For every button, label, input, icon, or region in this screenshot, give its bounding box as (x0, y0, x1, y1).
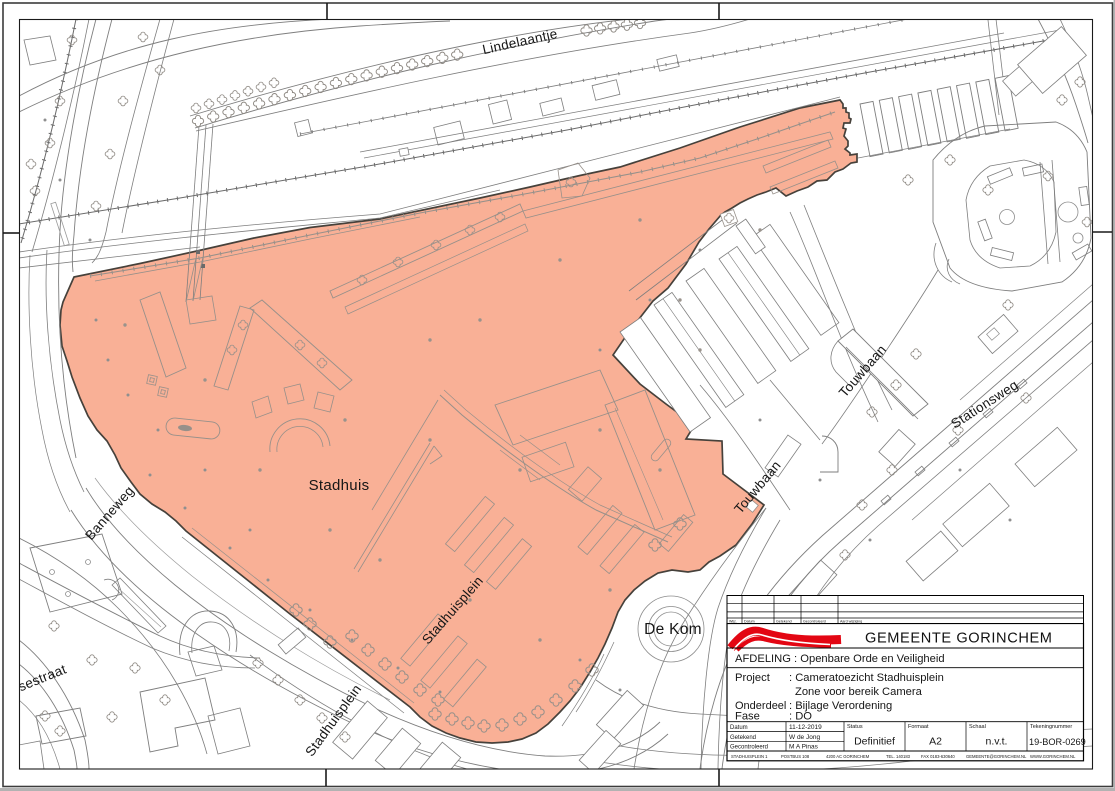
svg-text:Tekeningnummer: Tekeningnummer (1030, 724, 1072, 730)
svg-text:M A Pinas: M A Pinas (789, 744, 819, 751)
svg-text:STADHUISPLEIN 1: STADHUISPLEIN 1 (731, 754, 768, 759)
svg-text:WWW.GORINCHEM.NL: WWW.GORINCHEM.NL (1030, 754, 1076, 759)
svg-text:: Cameratoezicht Stadhuisplein: : Cameratoezicht Stadhuisplein (789, 672, 944, 684)
svg-text:De Kom: De Kom (644, 621, 702, 638)
svg-text:Aard wijziging: Aard wijziging (840, 619, 862, 623)
svg-text:Fase: Fase (735, 711, 760, 723)
svg-text:GEMEENTE GORINCHEM: GEMEENTE GORINCHEM (865, 631, 1053, 647)
svg-text:Zone voor bereik Camera: Zone voor bereik Camera (795, 686, 923, 698)
svg-text:Definitief: Definitief (854, 736, 895, 748)
svg-text:Gecontroleerd: Gecontroleerd (803, 619, 826, 623)
svg-text:n.v.t.: n.v.t. (986, 736, 1008, 748)
svg-text:Stadhuis: Stadhuis (309, 477, 370, 494)
svg-text:Schaal: Schaal (969, 724, 986, 730)
svg-text:AFDELING : Openbare Orde en Ve: AFDELING : Openbare Orde en Veiligheid (735, 653, 945, 665)
svg-text:Datum: Datum (730, 725, 748, 731)
svg-text:Project: Project (735, 672, 771, 684)
svg-text:A2: A2 (929, 736, 942, 748)
svg-text:Gecontroleerd: Gecontroleerd (730, 745, 768, 751)
svg-text:Formaat: Formaat (908, 724, 929, 730)
svg-text:TEL. 140183: TEL. 140183 (886, 754, 911, 759)
svg-text:Status: Status (847, 724, 863, 730)
svg-text:19-BOR-0269: 19-BOR-0269 (1029, 737, 1086, 747)
svg-text:Wijz.: Wijz. (729, 619, 737, 623)
svg-text:W de Jong: W de Jong (789, 734, 820, 741)
svg-text:Datum: Datum (744, 619, 755, 623)
svg-text:11-12-2019: 11-12-2019 (789, 724, 822, 731)
svg-text:Getekend: Getekend (730, 735, 756, 741)
svg-text:FAX 0183-630640: FAX 0183-630640 (921, 754, 955, 759)
svg-text:GEMEENTE@GORINCHEM.NL: GEMEENTE@GORINCHEM.NL (966, 754, 1027, 759)
svg-text:POSTBUS 108: POSTBUS 108 (781, 754, 810, 759)
svg-text:: DO: : DO (789, 711, 812, 723)
svg-text:4200 AC GORINCHEM: 4200 AC GORINCHEM (826, 754, 870, 759)
svg-text:Getekend: Getekend (776, 619, 792, 623)
